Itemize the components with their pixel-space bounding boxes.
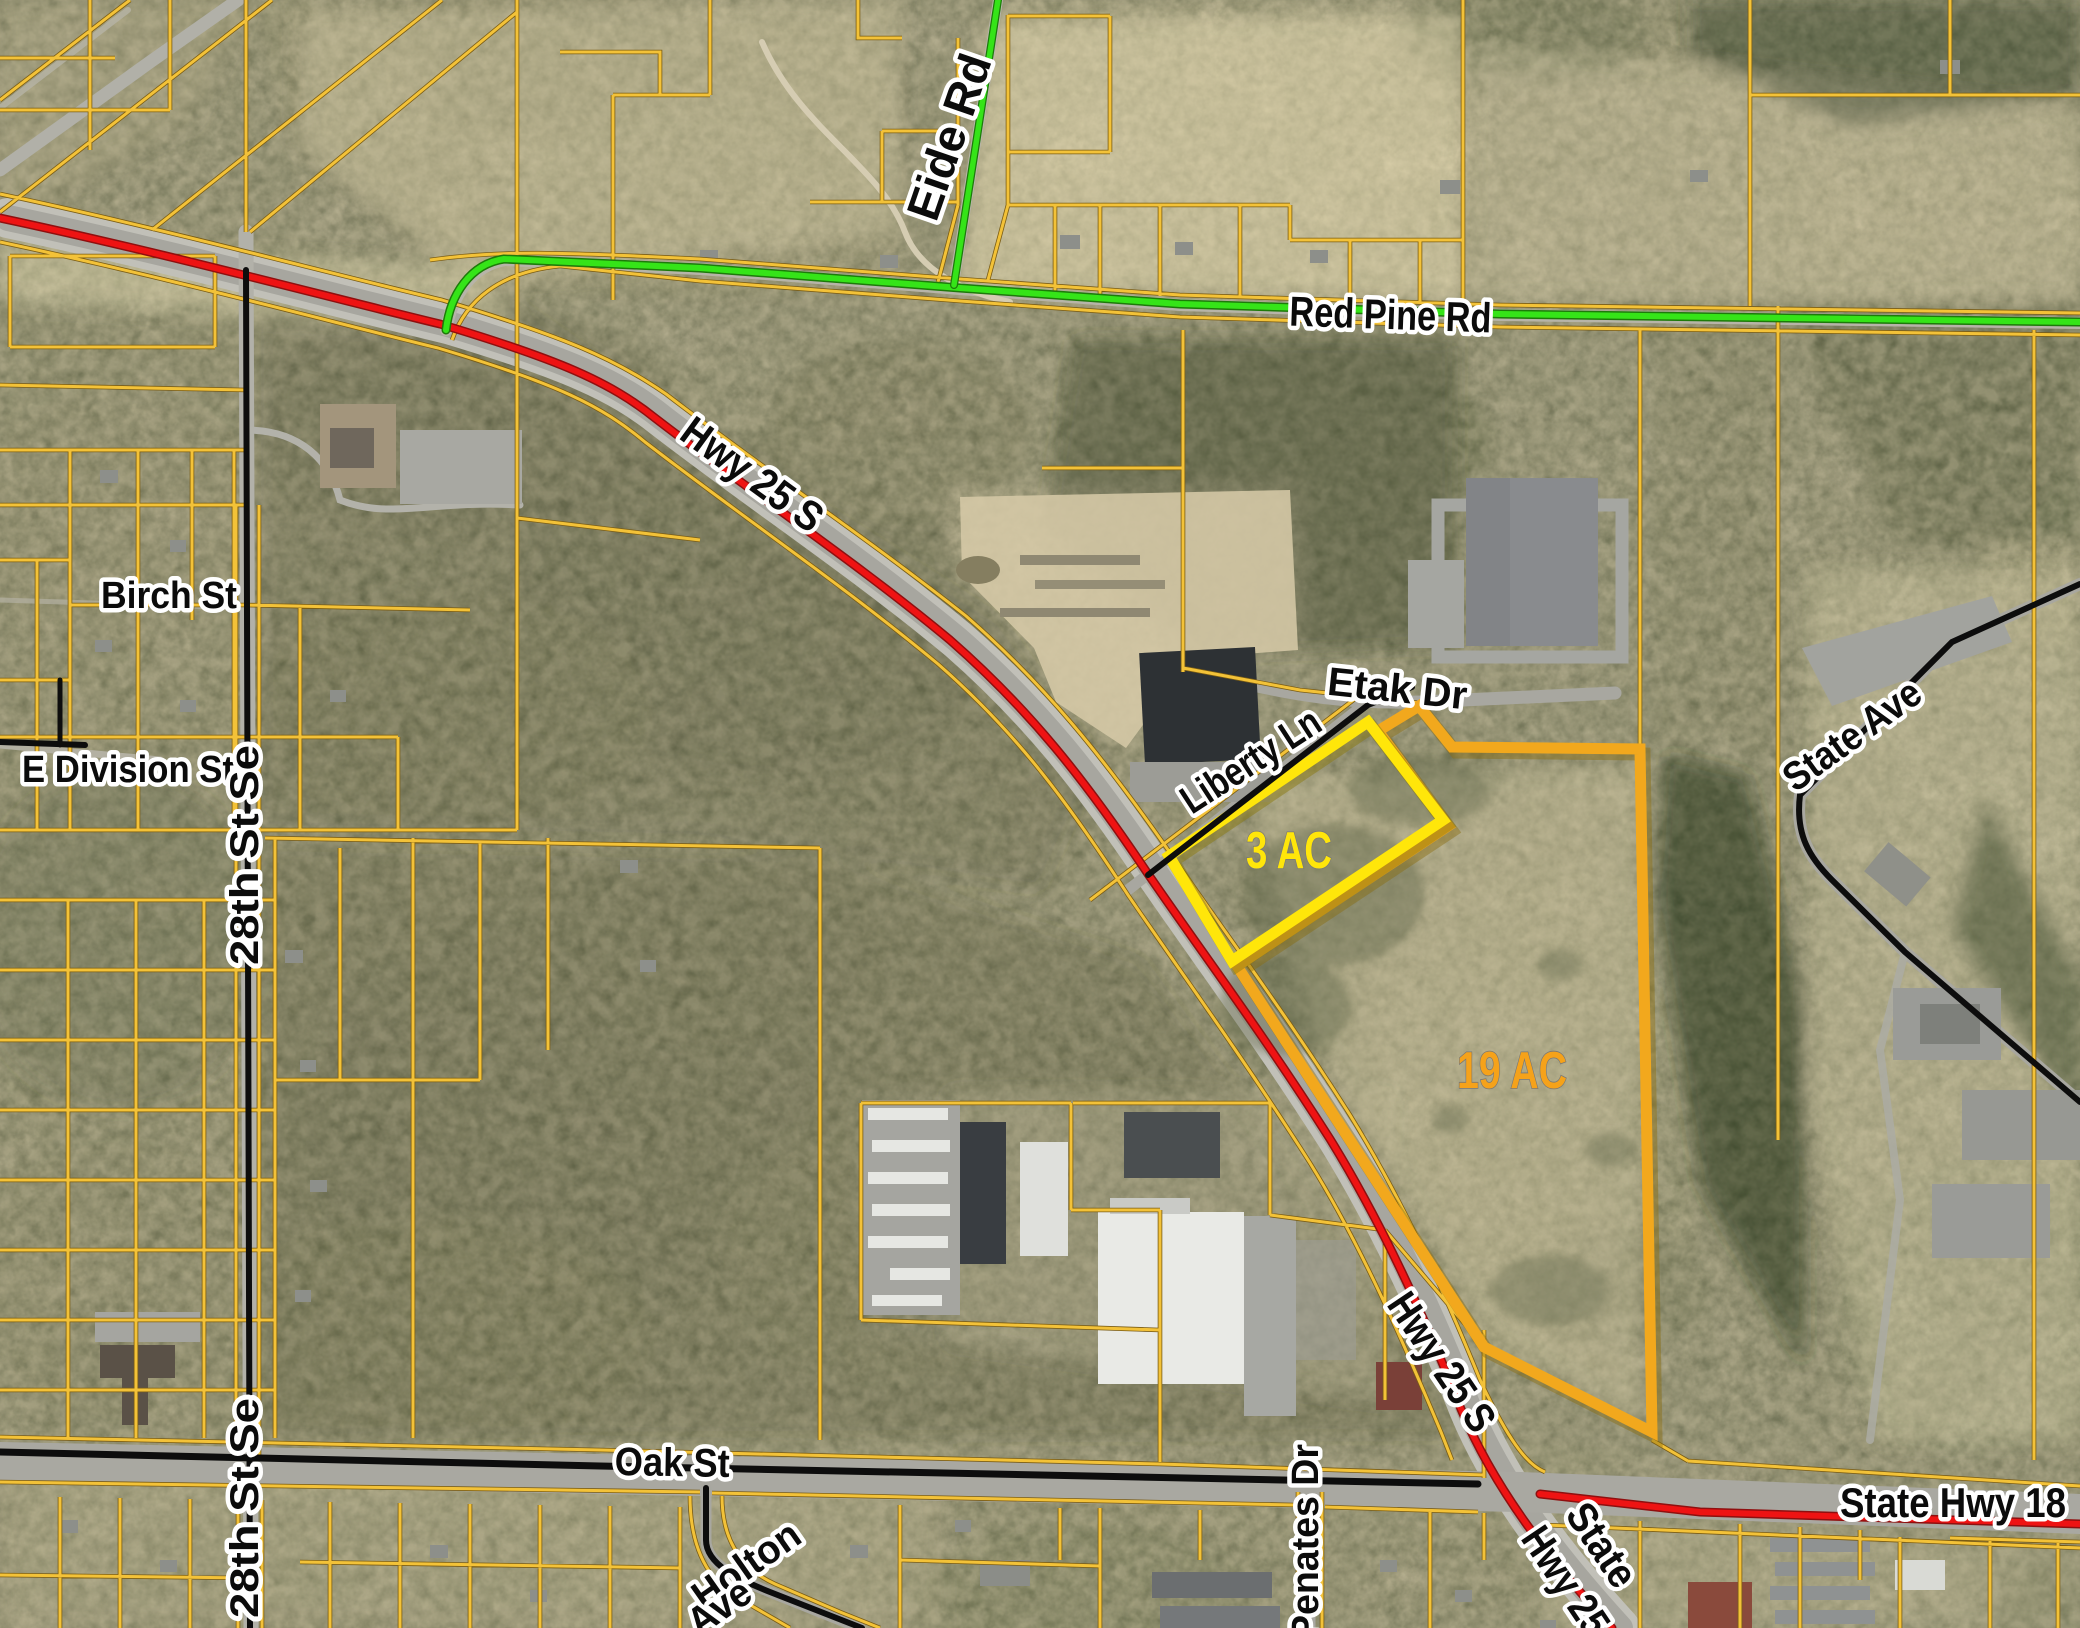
- svg-text:19 AC: 19 AC: [1457, 1042, 1567, 1100]
- svg-text:State Hwy 18: State Hwy 18: [1840, 1479, 2066, 1526]
- svg-text:Penates Dr: Penates Dr: [1285, 1444, 1327, 1628]
- svg-text:E Division St: E Division St: [22, 749, 234, 791]
- svg-text:28th St Se: 28th St Se: [223, 1398, 267, 1618]
- svg-text:28th St Se: 28th St Se: [223, 745, 267, 965]
- svg-text:Birch St: Birch St: [101, 575, 237, 617]
- svg-text:3 AC: 3 AC: [1246, 822, 1332, 880]
- svg-text:Red Pine Rd: Red Pine Rd: [1289, 287, 1493, 341]
- svg-text:Oak St: Oak St: [614, 1440, 730, 1486]
